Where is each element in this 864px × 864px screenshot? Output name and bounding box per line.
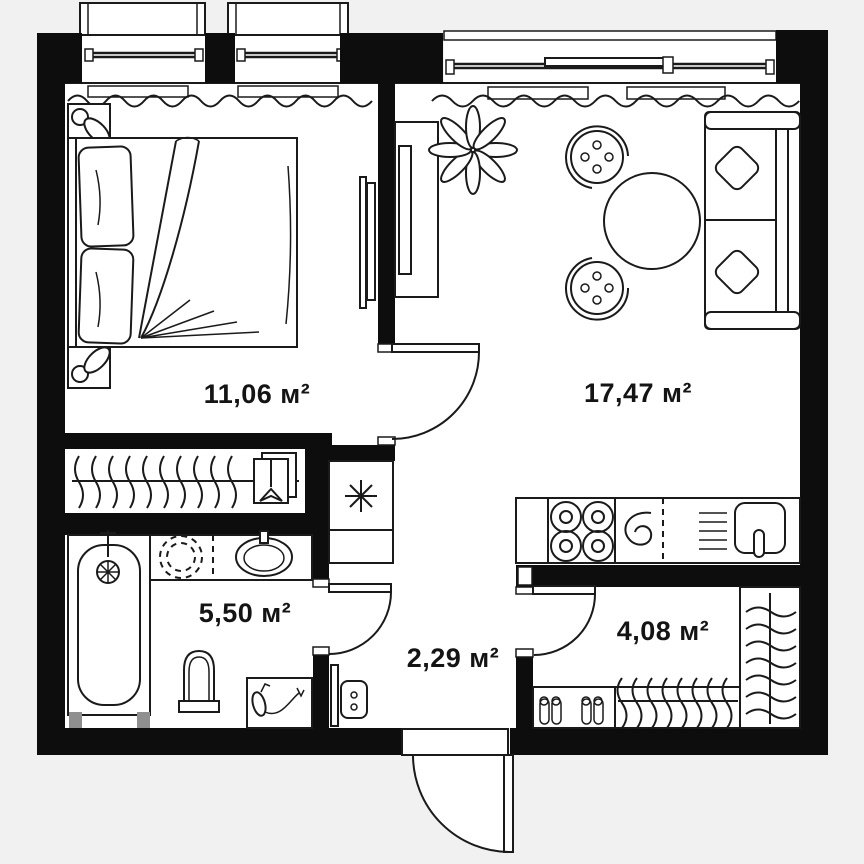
balcony-rail-1 <box>80 3 205 35</box>
bedroom-door-leaf <box>392 344 479 352</box>
area-label-bathroom: 5,50 м² <box>199 598 292 628</box>
electrical-panel <box>341 681 367 718</box>
round-table <box>604 173 700 269</box>
entrance-door-leaf <box>504 755 513 852</box>
door-jamb <box>518 567 532 585</box>
tub-foot <box>137 712 150 728</box>
radiator <box>88 86 188 97</box>
wall-top-right-corner <box>776 30 828 83</box>
shoe-shelf <box>533 687 740 728</box>
wall-top-pier <box>205 33 235 83</box>
kitchen <box>516 498 800 563</box>
wall-top-b <box>340 33 443 83</box>
wall-bedroom-bottom <box>37 433 332 449</box>
wall-top-a <box>37 33 82 83</box>
window-1-jamb <box>195 49 203 61</box>
wall-right <box>800 30 828 730</box>
area-label-living-kitchen: 17,47 м² <box>584 378 692 408</box>
door-jamb <box>516 587 533 594</box>
balcony-rail-2 <box>228 3 348 35</box>
pillow <box>78 248 133 344</box>
kitchen-faucet <box>754 530 764 557</box>
living-window-outer-edge <box>444 31 776 40</box>
mirror <box>331 665 338 726</box>
sink-faucet <box>260 531 268 543</box>
living-window-jamb <box>766 60 774 74</box>
area-label-entry-hall: 4,08 м² <box>617 616 710 646</box>
radiator <box>238 86 338 97</box>
wall-bathroom-right-lower <box>313 655 329 728</box>
tub-foot <box>69 712 82 728</box>
radiator <box>488 87 588 99</box>
wall-closet-left <box>313 461 329 579</box>
entry-hall-door-leaf <box>533 586 595 594</box>
window-2-jamb <box>237 49 245 61</box>
entrance-door-swing-area <box>413 755 510 852</box>
entrance-opening <box>402 729 508 755</box>
toilet-base <box>179 701 219 712</box>
door-jamb <box>516 649 533 657</box>
floor-plan: 11,06 м² 17,47 м² 5,50 м² 2,29 м² 4,08 м… <box>0 0 864 864</box>
chair-seat <box>571 262 623 314</box>
wall-left <box>37 33 65 755</box>
sofa-armrest <box>705 312 800 329</box>
wall-bottom-right <box>510 728 828 755</box>
chair-seat <box>571 131 623 183</box>
wall-bedroom-living <box>378 83 395 344</box>
area-label-hallway: 2,29 м² <box>407 643 500 673</box>
bathtub-drain-icon <box>97 561 119 583</box>
door-jamb <box>313 647 329 655</box>
wall-hall-divider <box>516 657 533 728</box>
door-jamb <box>313 579 329 587</box>
pillow <box>78 146 133 247</box>
living-window-slider-handle <box>663 57 673 73</box>
tv-icon <box>399 146 411 274</box>
wall-kitchen <box>516 565 800 587</box>
area-label-bedroom: 11,06 м² <box>204 379 311 409</box>
bathroom-door-leaf <box>329 584 391 592</box>
wall-bathroom-top <box>37 513 332 535</box>
tv-icon <box>367 183 375 300</box>
living-window-slider <box>545 58 669 66</box>
window-1-jamb <box>85 49 93 61</box>
tv-shelf <box>360 177 366 308</box>
floor-plan-canvas: 11,06 м² 17,47 м² 5,50 м² 2,29 м² 4,08 м… <box>0 0 864 864</box>
sofa <box>705 112 800 329</box>
wall-bottom-left <box>37 728 402 755</box>
living-window-jamb <box>446 60 454 74</box>
sofa-armrest <box>705 112 800 129</box>
